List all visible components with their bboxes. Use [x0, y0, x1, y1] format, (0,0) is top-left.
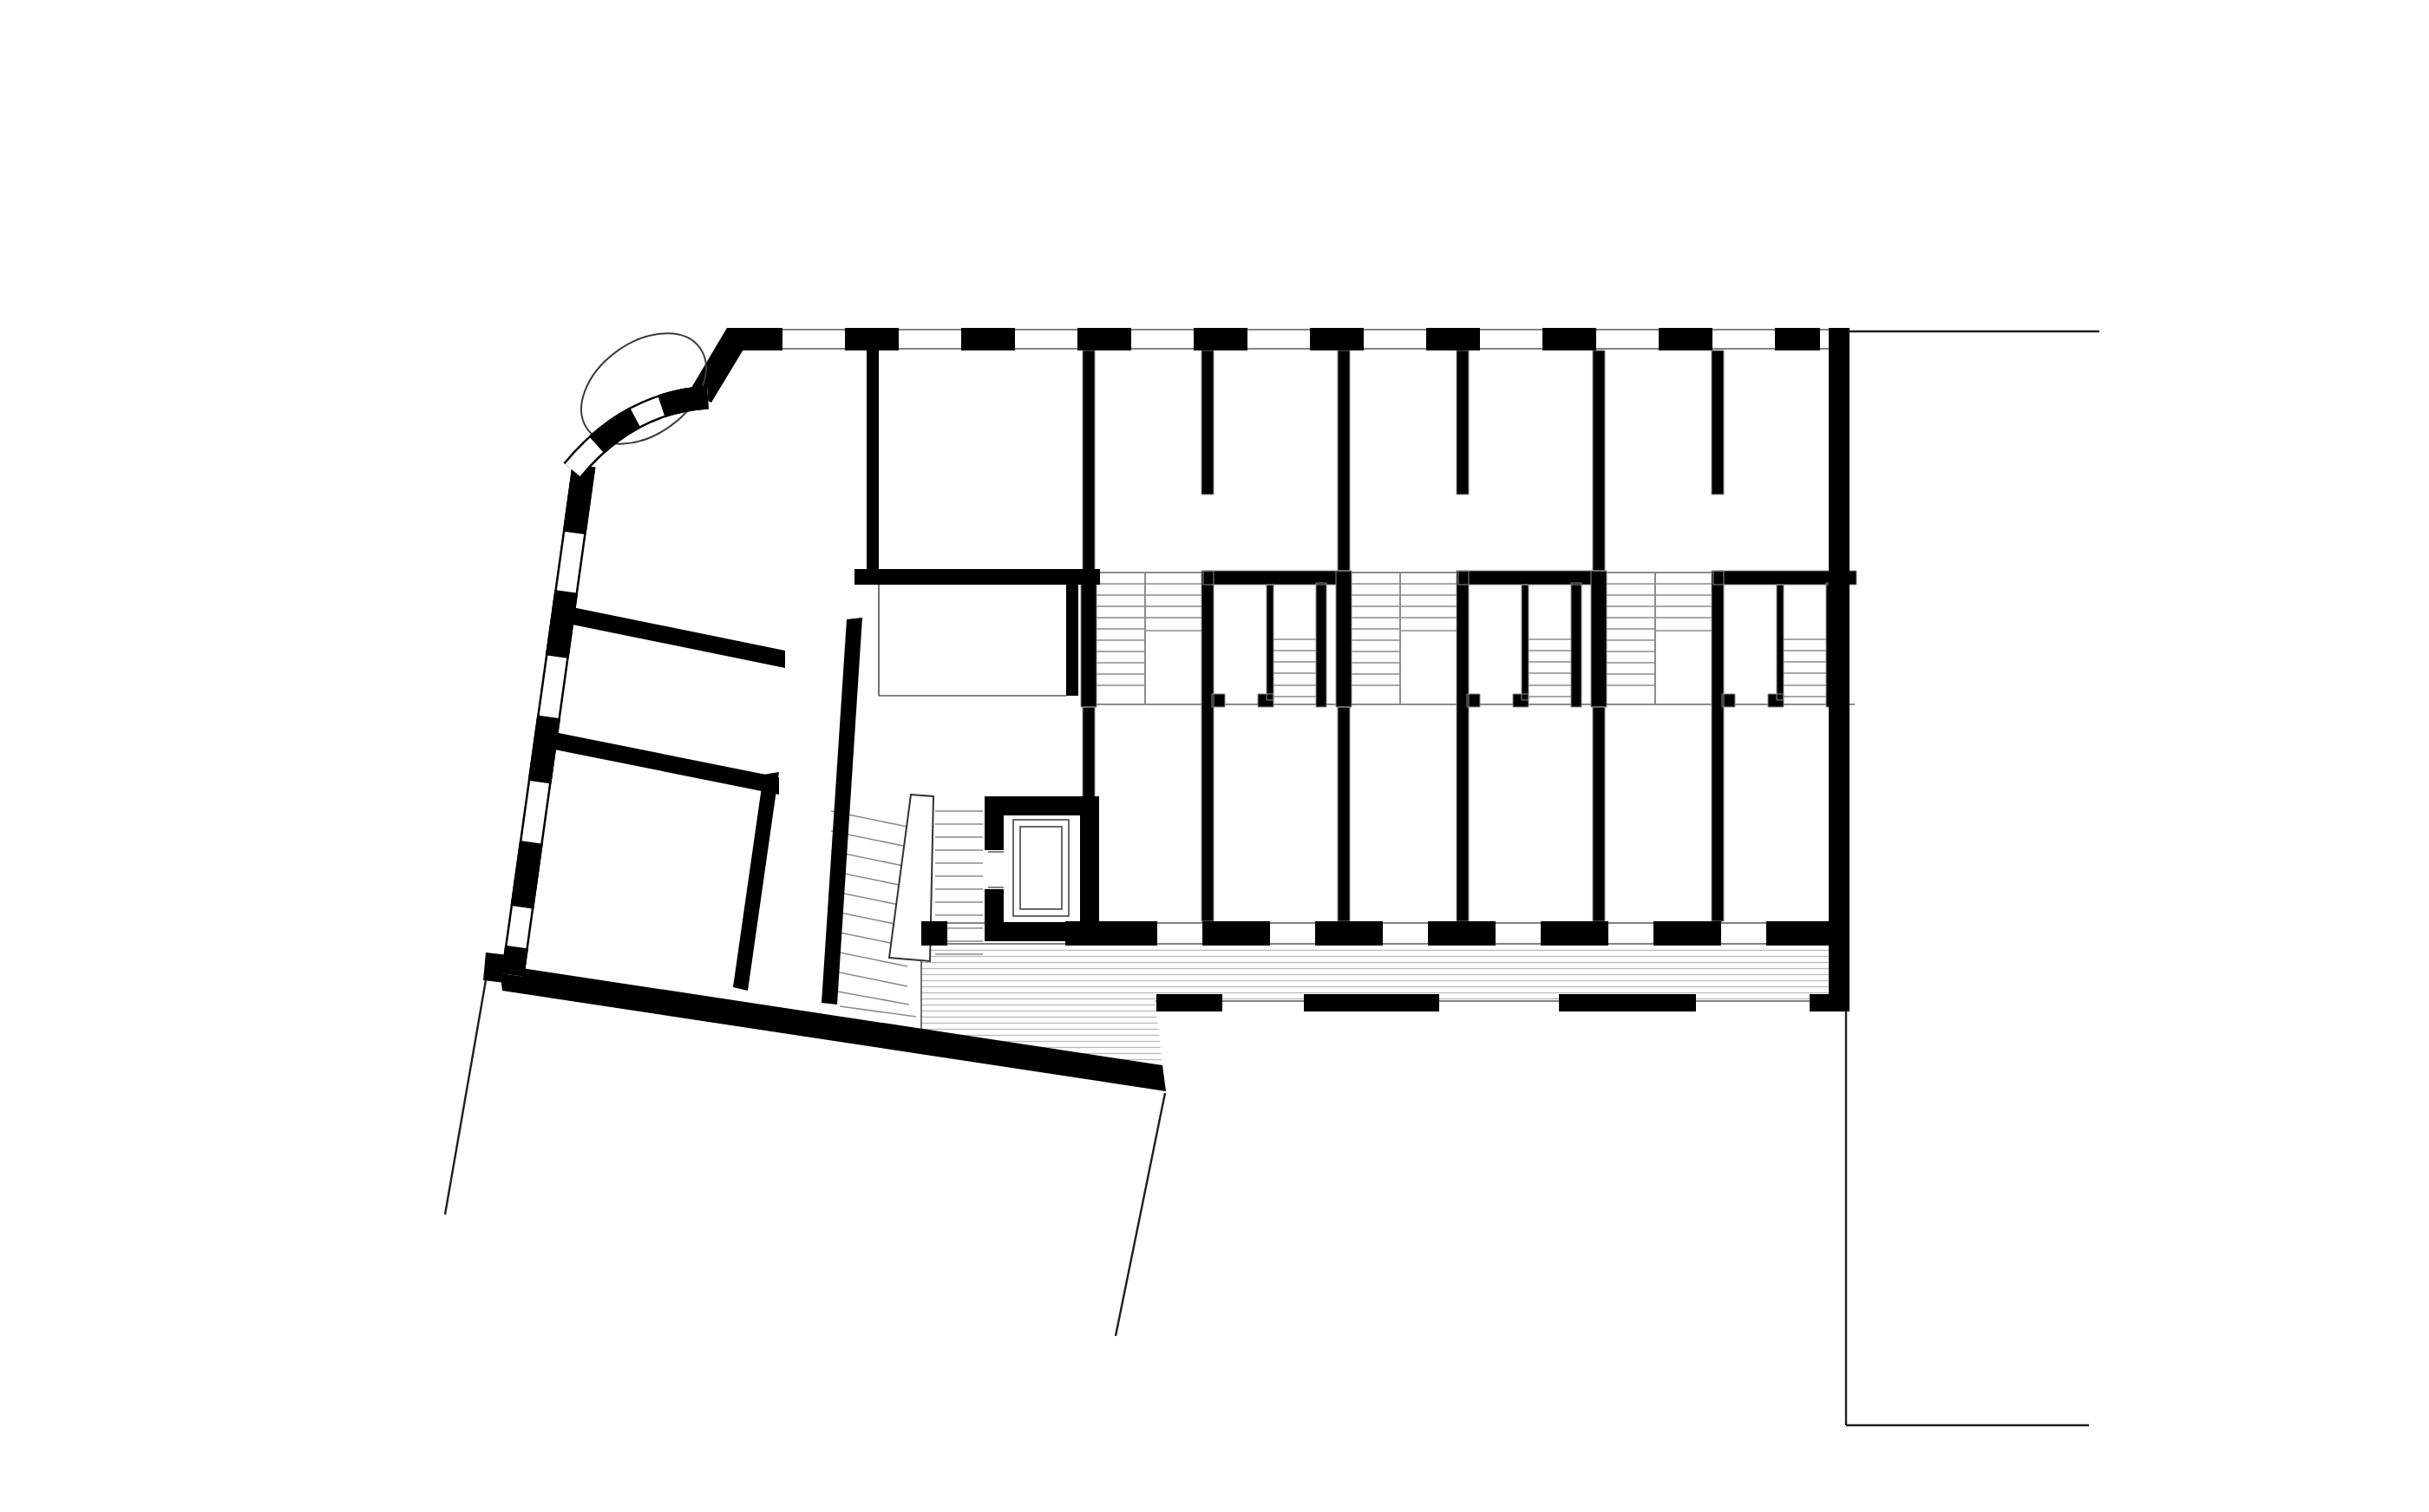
- floor-plan-canvas: [0, 0, 2429, 1512]
- paper-background: [0, 0, 2429, 1512]
- floor-plan-svg: [0, 0, 2429, 1512]
- right-facade-wall: [1829, 328, 1850, 1006]
- balcony-strip-hatch: [1090, 946, 1850, 1001]
